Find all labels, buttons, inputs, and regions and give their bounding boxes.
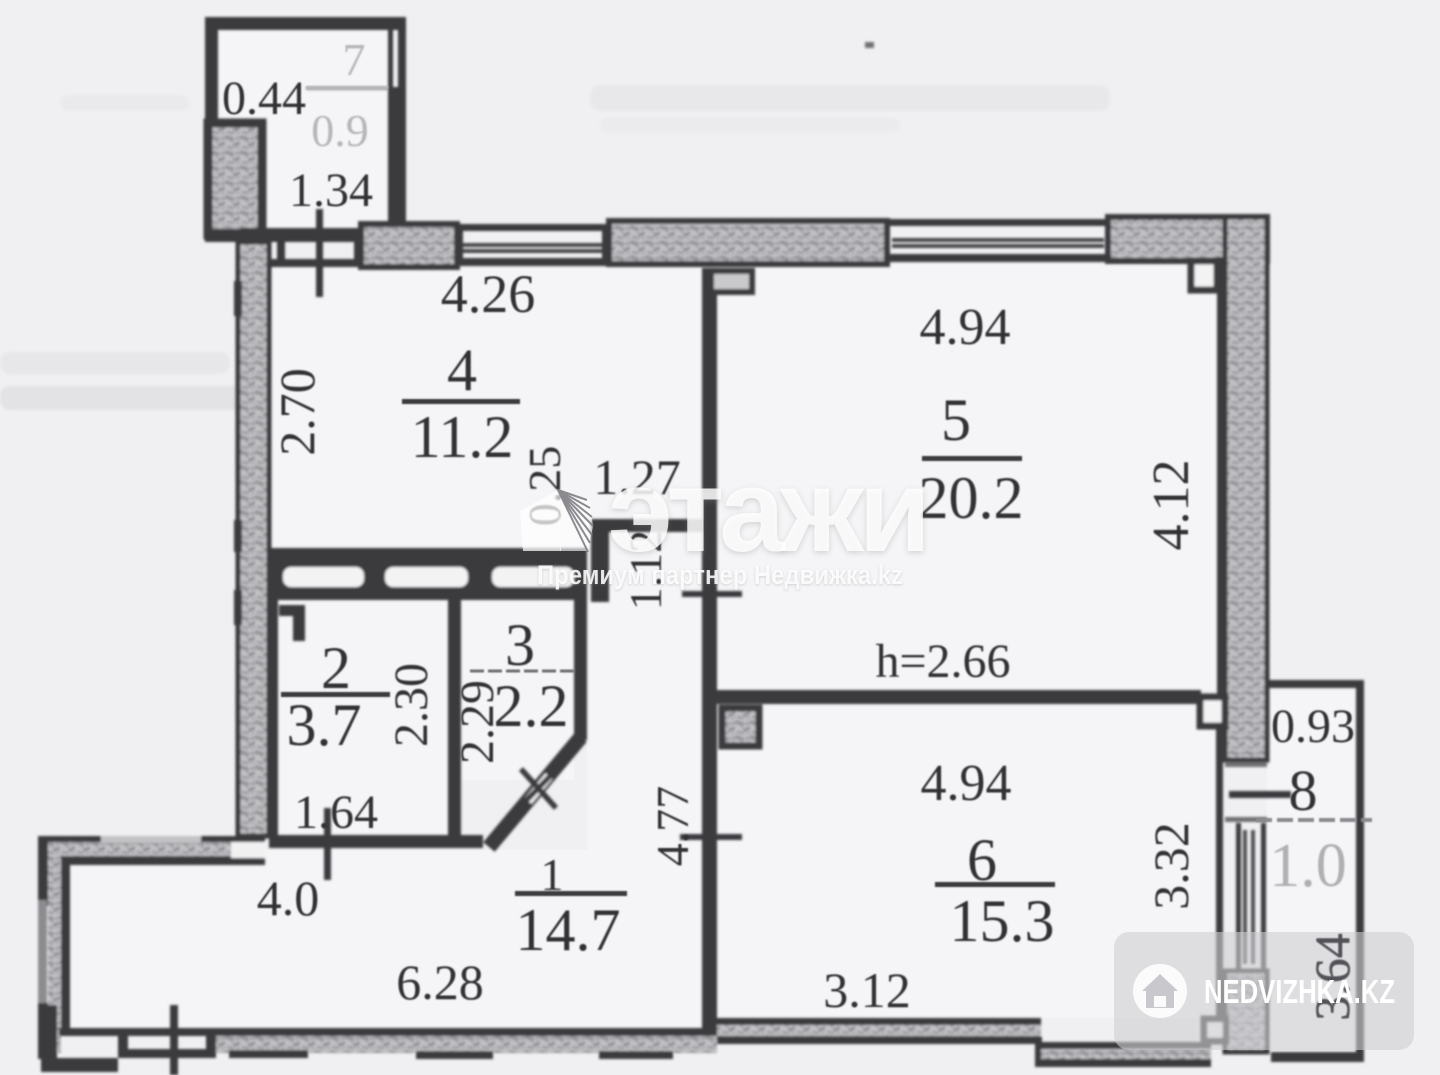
svg-text:2.30: 2.30 (385, 663, 438, 747)
svg-text:3: 3 (505, 612, 535, 678)
svg-text:11.2: 11.2 (411, 404, 514, 470)
svg-text:20.2: 20.2 (919, 465, 1024, 531)
svg-text:0.93: 0.93 (1271, 700, 1355, 753)
svg-text:4.12: 4.12 (1143, 460, 1200, 551)
svg-text:3.12: 3.12 (823, 962, 911, 1018)
svg-text:4.94: 4.94 (920, 299, 1011, 356)
svg-text:этажи: этажи (608, 445, 926, 577)
svg-text:2.29: 2.29 (451, 680, 504, 764)
svg-text:NEDVIZHKA.KZ: NEDVIZHKA.KZ (1204, 973, 1395, 1010)
svg-text:3.7: 3.7 (287, 692, 362, 758)
svg-text:14.7: 14.7 (516, 897, 621, 963)
svg-text:1.34: 1.34 (289, 164, 373, 217)
svg-text:Премиум партнер Недвижка.kz: Премиум партнер Недвижка.kz (537, 560, 903, 590)
svg-text:2.70: 2.70 (269, 368, 325, 456)
svg-text:7: 7 (343, 34, 366, 85)
svg-text:4.94: 4.94 (921, 755, 1012, 812)
svg-text:15.3: 15.3 (950, 888, 1055, 954)
svg-text:5: 5 (941, 387, 971, 453)
svg-text:4.0: 4.0 (257, 870, 320, 926)
svg-text:8: 8 (1289, 758, 1318, 823)
svg-text:4: 4 (447, 337, 477, 403)
svg-text:3.32: 3.32 (1143, 822, 1199, 910)
svg-text:0.9: 0.9 (311, 105, 369, 156)
svg-text:4.77: 4.77 (647, 786, 698, 867)
svg-text:6.28: 6.28 (396, 954, 484, 1010)
svg-text:1.0: 1.0 (1269, 832, 1347, 900)
svg-text:h=2.66: h=2.66 (875, 635, 1010, 688)
svg-text:4.26: 4.26 (441, 264, 536, 324)
svg-text:0.44: 0.44 (222, 72, 306, 125)
svg-text:1.64: 1.64 (294, 786, 378, 839)
svg-text:2.2: 2.2 (494, 673, 569, 739)
